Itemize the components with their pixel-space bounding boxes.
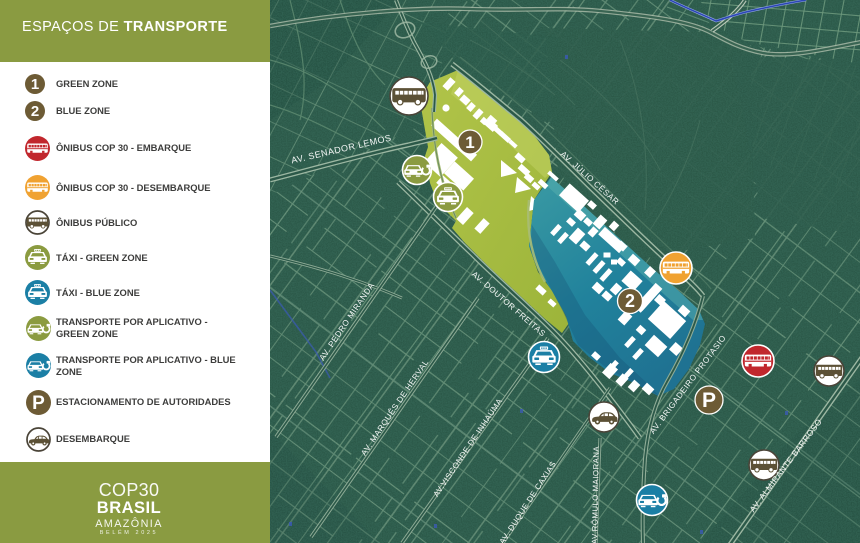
svg-text:P: P xyxy=(32,393,45,414)
svg-text:AV.RÔMULO MAIORANA: AV.RÔMULO MAIORANA xyxy=(590,445,601,543)
svg-text:P: P xyxy=(702,389,716,412)
svg-text:2: 2 xyxy=(625,291,635,311)
svg-text:2: 2 xyxy=(30,103,38,120)
svg-text:1: 1 xyxy=(465,133,474,152)
svg-text:1: 1 xyxy=(30,76,38,93)
